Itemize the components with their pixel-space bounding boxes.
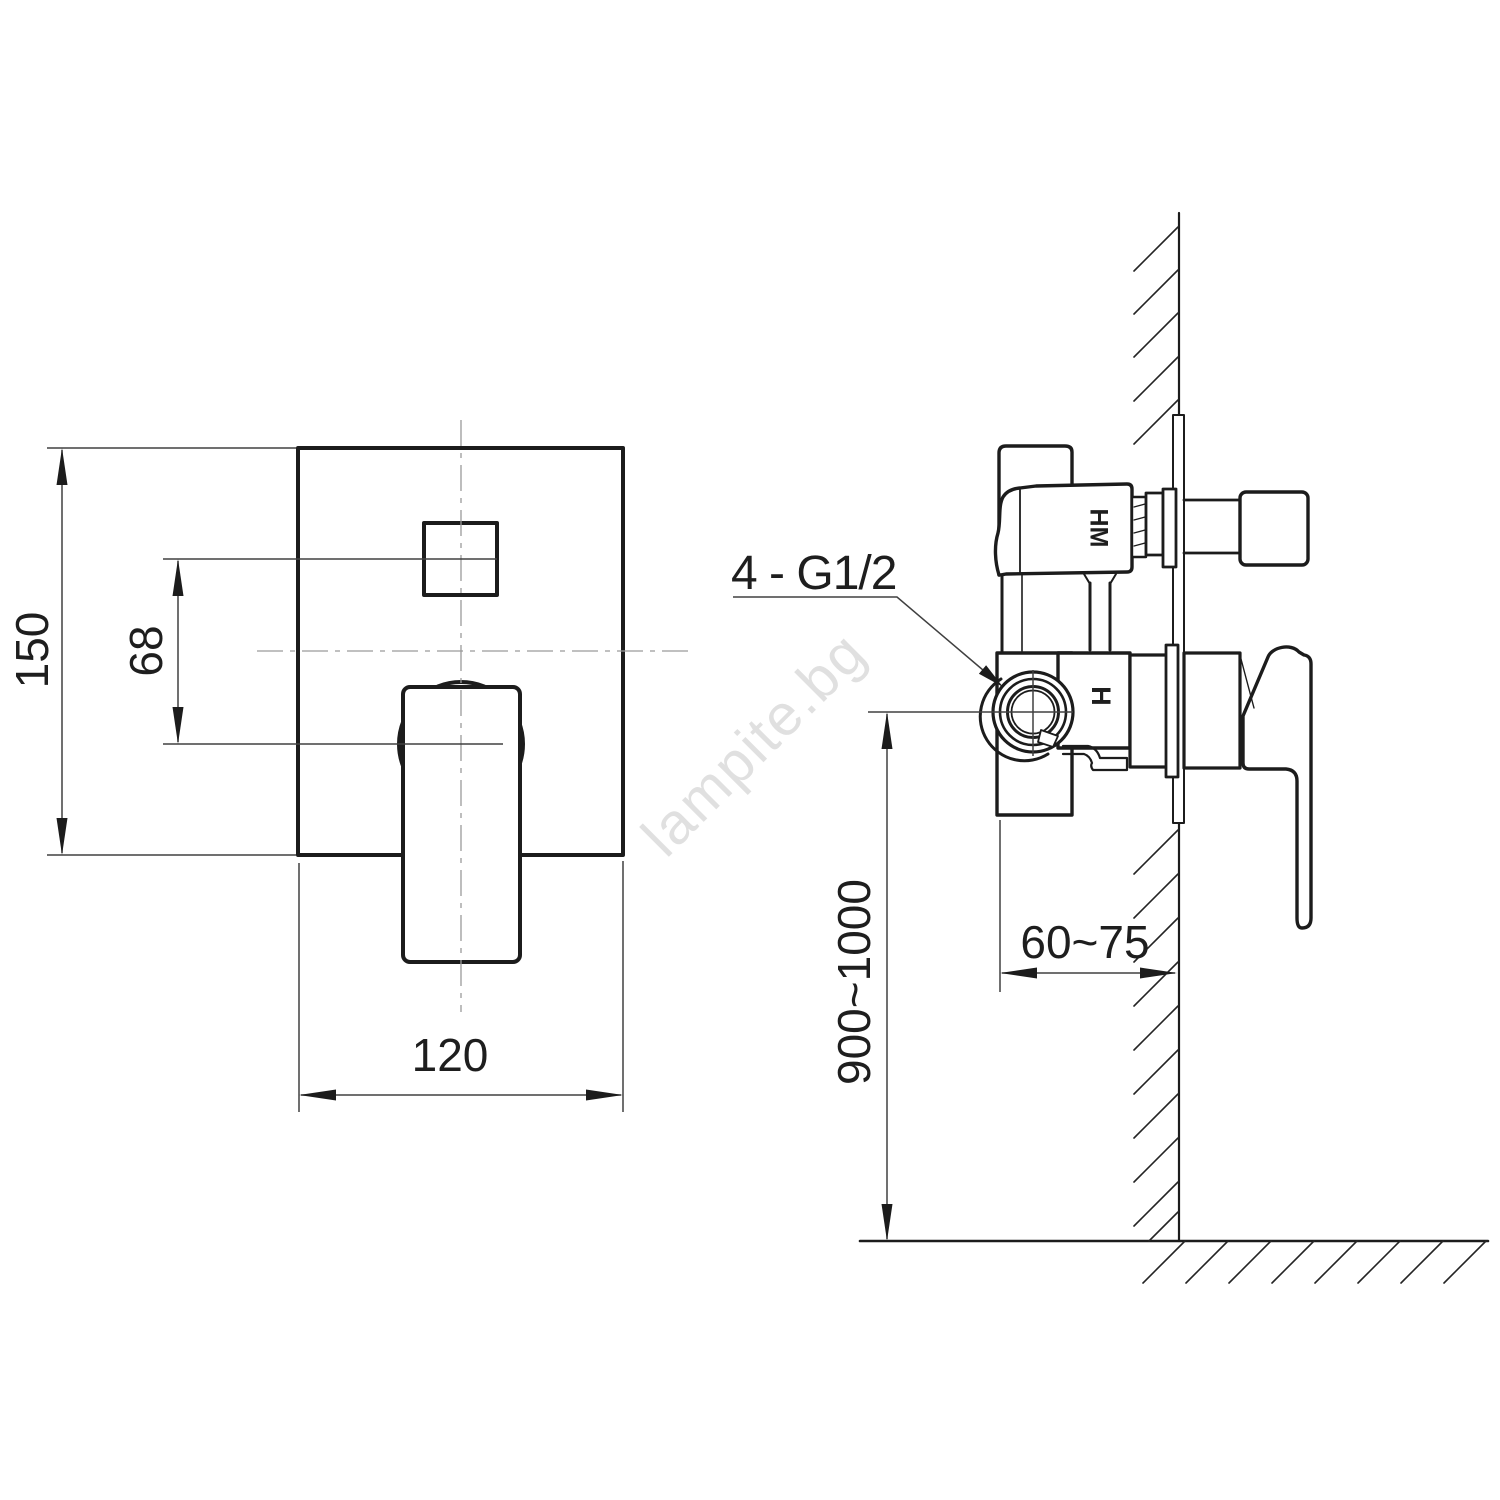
collar xyxy=(1146,493,1163,555)
mixer-mark-label: H xyxy=(1086,686,1116,706)
mixer-flange xyxy=(1166,645,1178,777)
handle-lever xyxy=(1243,647,1311,928)
handle-offset-dimension-label: 68 xyxy=(120,625,172,676)
install-height-dimension-label: 900~1000 xyxy=(828,879,880,1085)
front-view xyxy=(163,420,693,1012)
floor-hatching xyxy=(1143,1241,1486,1283)
dimension-60-75: 60~75 xyxy=(1000,820,1177,992)
dimension-900-1000: 900~1000 xyxy=(828,712,892,1241)
width-dimension-label: 120 xyxy=(412,1029,489,1081)
side-view: HM H xyxy=(731,213,1488,1283)
wall-hatching-bottom xyxy=(1134,830,1178,1241)
technical-drawing-page: 150 68 120 xyxy=(0,0,1500,1500)
diverter-flange xyxy=(1163,489,1176,567)
diverter-mark-label: HM xyxy=(1084,509,1112,548)
lever-handle-side xyxy=(1184,647,1311,928)
connection-label: 4 - G1/2 xyxy=(731,547,896,600)
depth-dimension-label: 60~75 xyxy=(1020,916,1149,968)
connector-pipes xyxy=(1002,574,1116,651)
diverter-valve-assembly: HM xyxy=(995,446,1308,575)
height-dimension-label: 150 xyxy=(6,612,58,689)
cartridge xyxy=(1130,655,1167,767)
wall-hatching-top xyxy=(1134,227,1178,444)
diverter-knob xyxy=(1240,492,1308,565)
watermark: lampite.bg xyxy=(629,619,878,868)
mixer-installation-drawing: 150 68 120 xyxy=(0,0,1500,1500)
mixer-valve-assembly: H xyxy=(868,645,1178,815)
handle-base xyxy=(1184,653,1240,768)
dimension-68: 68 xyxy=(120,559,183,744)
